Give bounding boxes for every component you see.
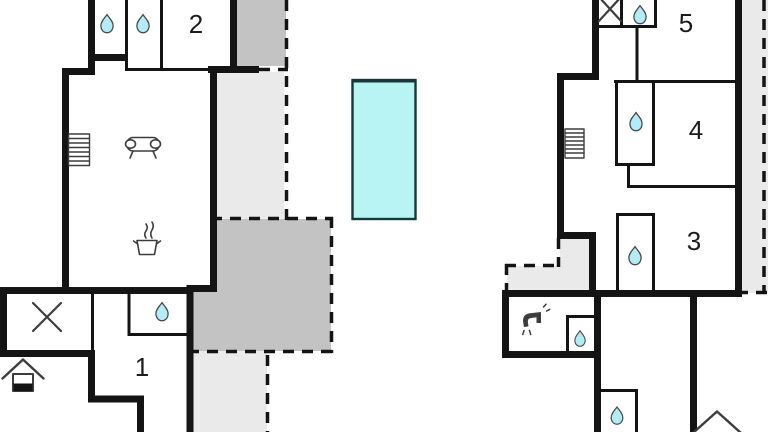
water-drop-icon	[629, 247, 641, 265]
stairs-icon	[69, 134, 90, 166]
pool-icon	[352, 80, 417, 219]
water-drop-icon	[611, 407, 623, 424]
right-unit-walls	[502, 0, 742, 432]
stove-icon	[134, 222, 161, 255]
faucet-icon	[523, 304, 550, 334]
floor-plan-canvas: 1 2	[0, 0, 768, 432]
water-drop-icon	[634, 6, 646, 24]
shaded-area	[217, 72, 284, 219]
water-drop-icon	[575, 331, 585, 346]
floor-plan: 1 2	[0, 0, 768, 432]
room-label-3: 3	[687, 226, 701, 256]
left-unit: 1 2	[0, 0, 333, 432]
water-drop-icon	[156, 303, 168, 321]
room-label-1: 1	[135, 352, 149, 382]
sofa-icon	[126, 138, 161, 159]
cross-icon	[599, 0, 621, 21]
water-drop-icon	[137, 15, 149, 33]
shaded-area	[237, 0, 286, 66]
room-label-2: 2	[189, 9, 203, 39]
stairs-icon	[565, 129, 584, 158]
shaded-area	[193, 351, 267, 432]
house-icon	[3, 360, 44, 392]
cross-icon	[33, 303, 61, 331]
room-label-5: 5	[679, 8, 693, 38]
house-icon	[693, 412, 741, 432]
right-unit: 3 4 5	[502, 0, 768, 432]
water-drop-icon	[101, 15, 113, 33]
room-label-4: 4	[689, 115, 703, 145]
water-drop-icon	[630, 113, 642, 131]
